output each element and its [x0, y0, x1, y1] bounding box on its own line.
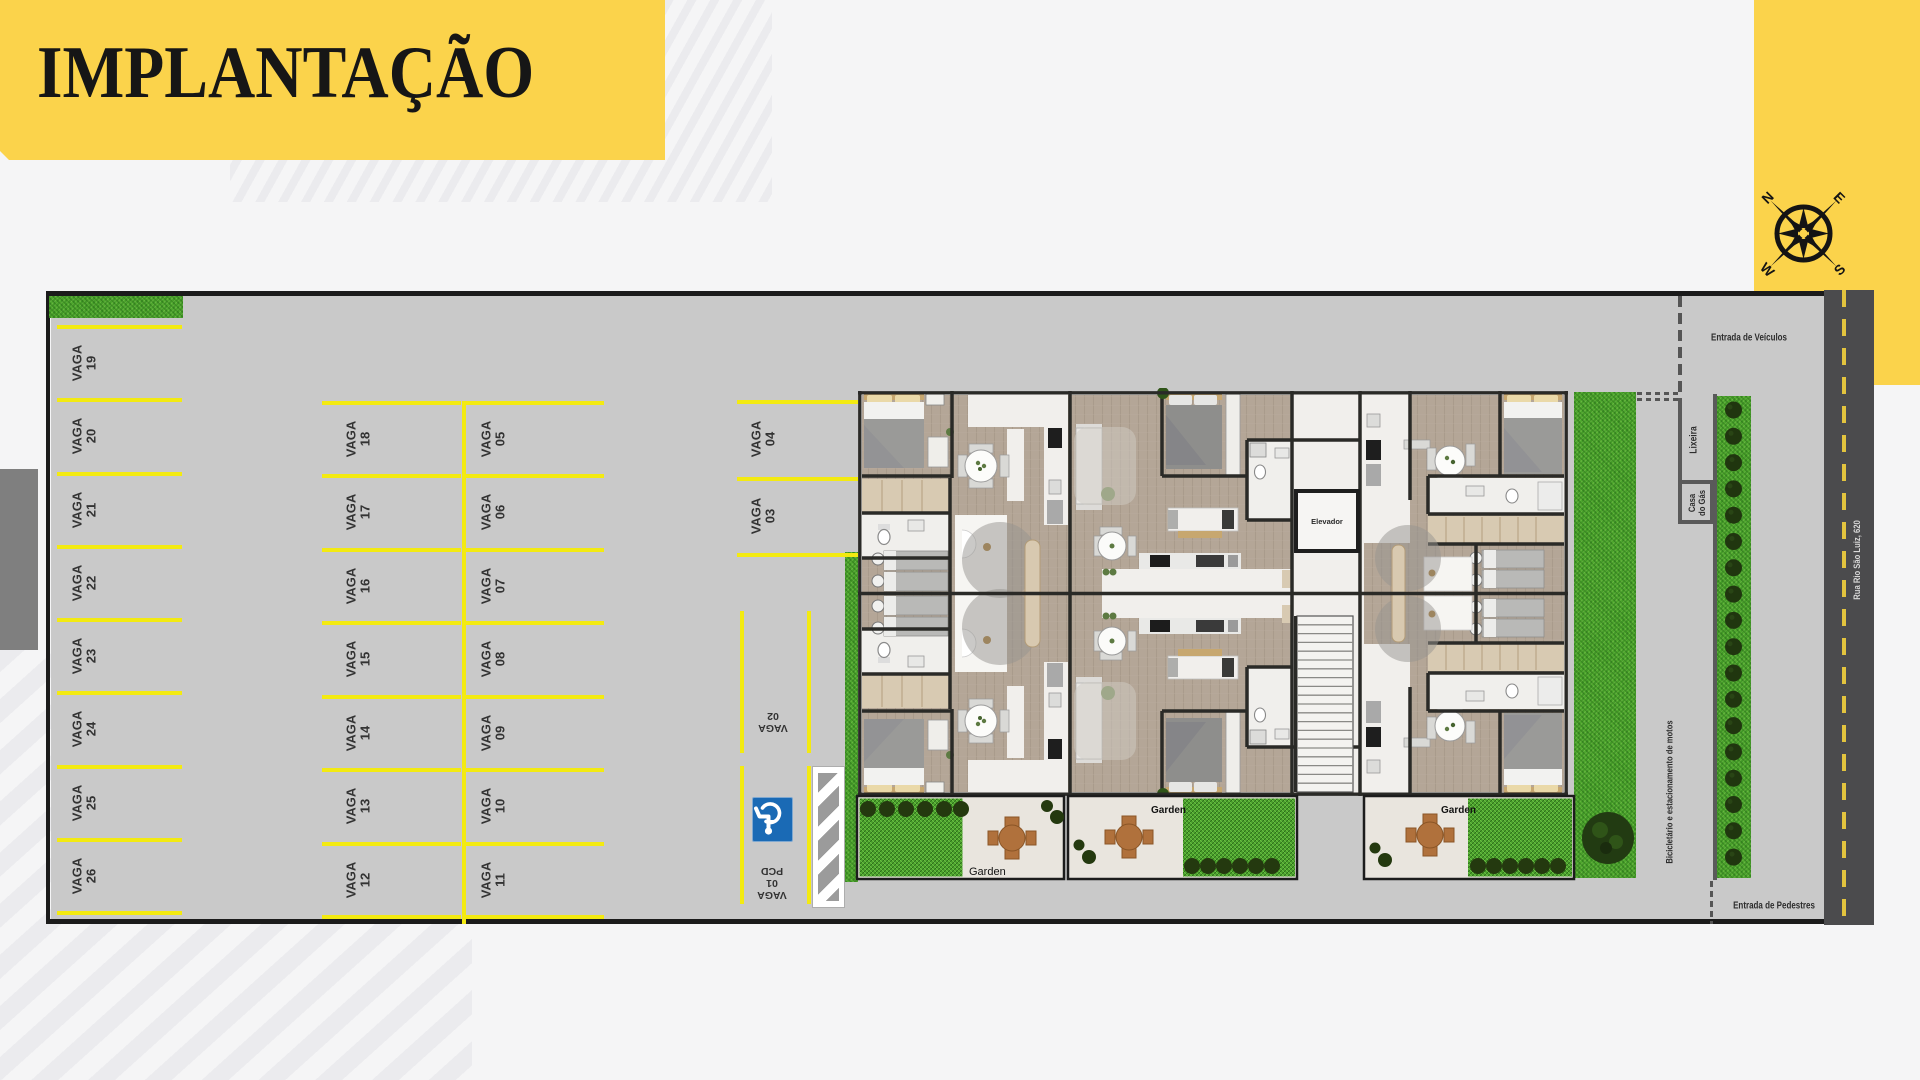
svg-text:S: S [1831, 261, 1849, 279]
svg-text:Garden: Garden [1441, 805, 1476, 816]
svg-text:Elevador: Elevador [1311, 517, 1343, 526]
svg-text:Garden: Garden [969, 866, 1006, 878]
svg-text:W: W [1757, 259, 1778, 280]
svg-text:Garden: Garden [1151, 805, 1186, 816]
